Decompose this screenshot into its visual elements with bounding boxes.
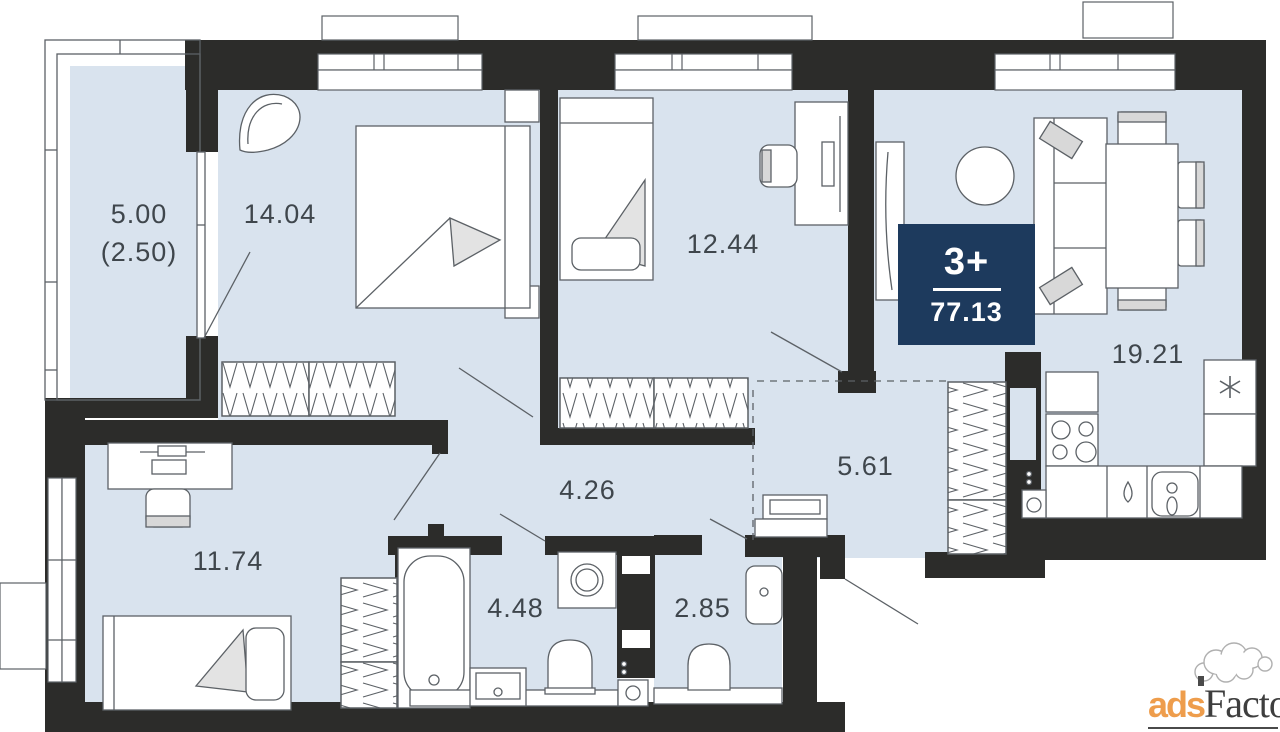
- fridge-icon: [1204, 360, 1256, 466]
- room-area-label-bedroom-3: 11.74: [168, 543, 288, 581]
- single-bed-icon: [103, 616, 291, 710]
- badge-divider: [933, 288, 1001, 291]
- stove-icon: [1046, 372, 1098, 466]
- wardrobe-icon: [948, 382, 1006, 554]
- single-bed-icon: [560, 98, 653, 280]
- room-area-label-hallway: 4.26: [530, 472, 645, 510]
- wardrobe-icon: [341, 578, 397, 708]
- round-table-icon: [956, 147, 1014, 205]
- badge-total-area: 77.13: [930, 299, 1003, 326]
- watermark-suffix: Factory: [1204, 681, 1280, 726]
- room-area-label-toilet: 2.85: [645, 590, 760, 628]
- wardrobe-icon: [560, 378, 748, 428]
- bathtub-icon: [398, 548, 470, 708]
- room-area-label-corridor: 5.61: [808, 448, 923, 486]
- floor-plan-root: 5.00 (2.50) 14.04 12.44 19.21 4.26 5.61 …: [0, 0, 1280, 732]
- room-area-label-bedroom-2: 12.44: [663, 226, 783, 264]
- kitchen-counter: [1022, 466, 1242, 518]
- watermark-logo: adsFactory: [1148, 646, 1280, 726]
- balcony-reduced-area: (2.50): [84, 234, 194, 272]
- room-area-label-living-kitchen: 19.21: [1088, 336, 1208, 374]
- toilet-icon: [545, 640, 595, 694]
- watermark-text: adsFactory: [1148, 680, 1278, 729]
- balcony-area: 5.00: [111, 199, 168, 229]
- bath-sink-icon: [470, 668, 526, 706]
- room-area-label-bathroom: 4.48: [458, 590, 573, 628]
- shoe-cabinet-icon: [755, 495, 827, 537]
- wardrobe-icon: [222, 362, 395, 416]
- room-area-label-bedroom-1: 14.04: [220, 196, 340, 234]
- kitchen-sink-icon: [1152, 472, 1198, 516]
- badge-rooms-count: 3+: [944, 243, 989, 281]
- area-badge: 3+ 77.13: [898, 224, 1035, 345]
- room-area-label-balcony: 5.00 (2.50): [84, 196, 194, 272]
- sofa-icon: [1034, 118, 1107, 314]
- watermark-prefix: ads: [1148, 684, 1204, 725]
- smoke-icon: [1178, 634, 1278, 686]
